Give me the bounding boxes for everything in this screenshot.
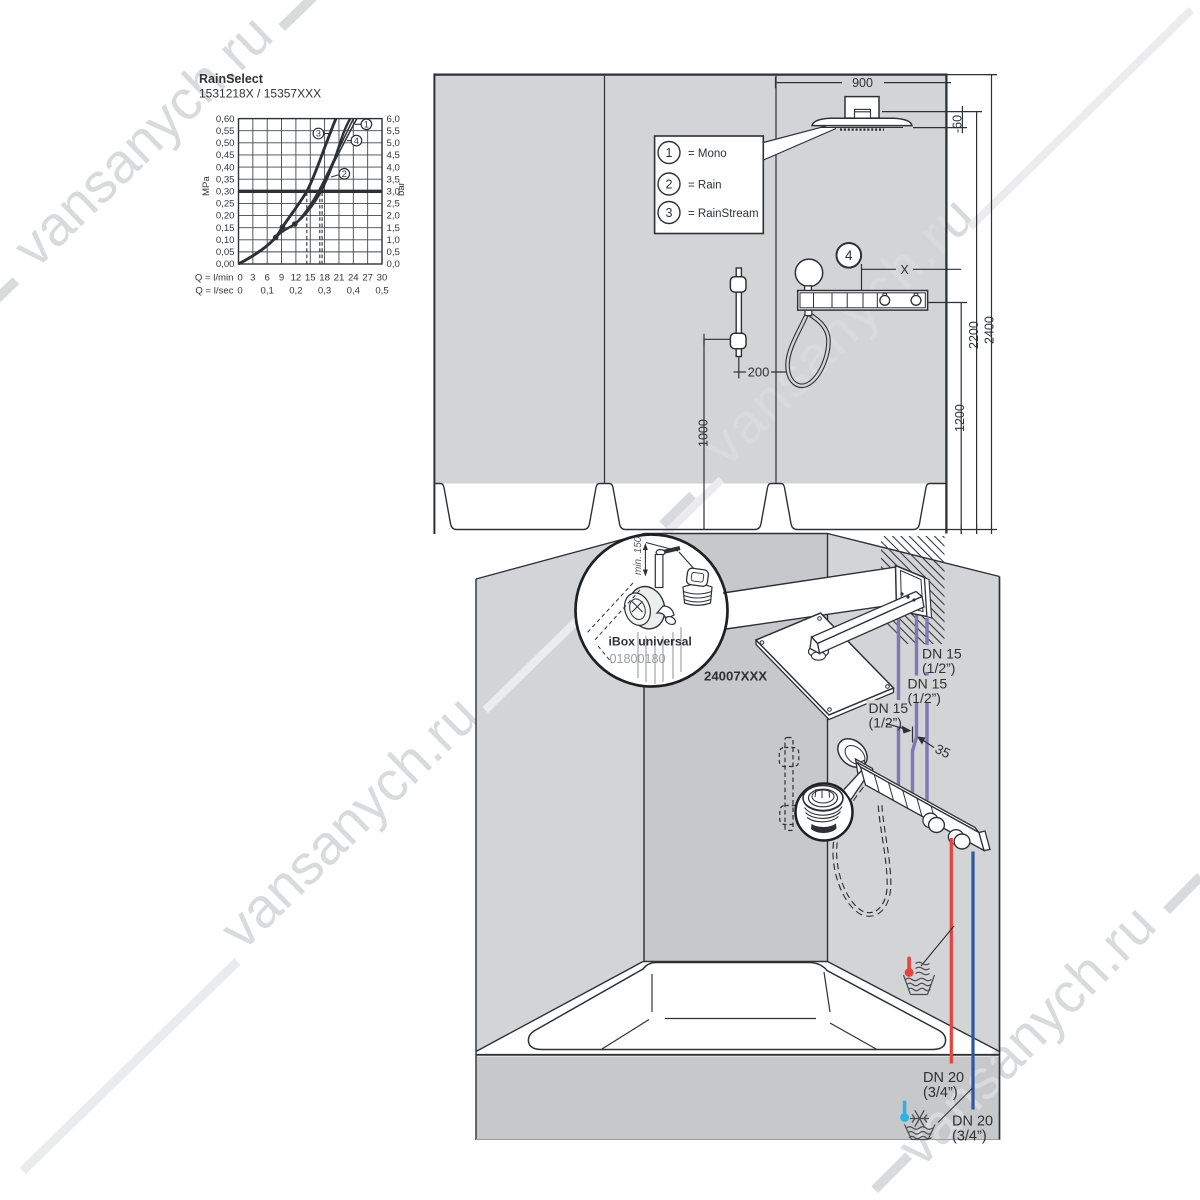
svg-text:0,15: 0,15 [216, 223, 235, 234]
svg-text:0,05: 0,05 [216, 247, 235, 258]
svg-text:0,25: 0,25 [216, 199, 235, 210]
svg-text:-60: -60 [951, 115, 965, 133]
svg-text:1,0: 1,0 [387, 235, 400, 246]
svg-text:5,0: 5,0 [387, 138, 400, 149]
svg-text:1200: 1200 [953, 404, 967, 432]
svg-text:RainSelect: RainSelect [199, 72, 264, 86]
svg-text:0,55: 0,55 [216, 126, 235, 137]
svg-text:0,40: 0,40 [216, 162, 235, 173]
svg-text:3: 3 [316, 129, 321, 139]
svg-text:27: 27 [362, 273, 373, 284]
svg-text:30: 30 [377, 273, 388, 284]
svg-text:DN 20: DN 20 [952, 1114, 993, 1130]
svg-text:0,45: 0,45 [216, 150, 235, 161]
svg-text:0,00: 0,00 [216, 259, 235, 270]
svg-text:9: 9 [279, 273, 284, 284]
svg-text:200: 200 [748, 364, 770, 379]
svg-text:01800180: 01800180 [610, 652, 666, 666]
svg-text:= RainStream: = RainStream [688, 208, 759, 220]
svg-text:(3/4”): (3/4”) [923, 1085, 958, 1101]
svg-text:1000: 1000 [697, 419, 711, 447]
svg-text:0,0: 0,0 [387, 259, 400, 270]
svg-text:0,3: 0,3 [318, 286, 331, 297]
svg-text:(1/2”): (1/2”) [869, 715, 902, 731]
svg-text:3: 3 [250, 273, 255, 284]
svg-text:(1/2”): (1/2”) [908, 690, 941, 706]
svg-text:21: 21 [334, 273, 345, 284]
svg-text:(3/4”): (3/4”) [952, 1129, 987, 1145]
svg-text:2: 2 [342, 169, 347, 179]
svg-text:24007XXX: 24007XXX [704, 669, 767, 684]
svg-text:5,5: 5,5 [387, 126, 400, 137]
svg-text:0,50: 0,50 [216, 138, 235, 149]
svg-text:12: 12 [291, 273, 302, 284]
svg-text:= Rain: = Rain [688, 180, 722, 192]
svg-text:Q = l/sec: Q = l/sec [195, 286, 233, 297]
svg-text:Q = l/min: Q = l/min [195, 273, 234, 284]
svg-text:1,5: 1,5 [387, 223, 400, 234]
svg-text:1: 1 [666, 146, 673, 160]
svg-text:1: 1 [364, 120, 369, 130]
svg-text:0,60: 0,60 [216, 114, 235, 125]
svg-text:24: 24 [348, 273, 359, 284]
svg-text:0,30: 0,30 [216, 187, 235, 198]
svg-text:15: 15 [305, 273, 316, 284]
svg-text:4,0: 4,0 [387, 162, 400, 173]
svg-text:0,35: 0,35 [216, 174, 235, 185]
svg-text:bar: bar [396, 181, 407, 196]
svg-text:MPa: MPa [201, 176, 212, 196]
svg-text:4,5: 4,5 [387, 150, 400, 161]
svg-text:= Mono: = Mono [688, 148, 727, 160]
svg-text:2200: 2200 [967, 321, 981, 349]
svg-text:X: X [900, 263, 909, 277]
svg-text:0,5: 0,5 [387, 247, 400, 258]
svg-text:0,4: 0,4 [347, 286, 361, 297]
svg-text:6,0: 6,0 [387, 114, 400, 125]
svg-text:0,5: 0,5 [375, 286, 388, 297]
svg-text:2,0: 2,0 [387, 211, 400, 222]
svg-text:0,2: 0,2 [289, 286, 302, 297]
svg-text:2: 2 [666, 178, 673, 192]
svg-text:DN 20: DN 20 [923, 1070, 964, 1086]
svg-text:(1/2”): (1/2”) [922, 660, 955, 676]
svg-text:0: 0 [237, 273, 242, 284]
svg-text:0,20: 0,20 [216, 211, 235, 222]
svg-text:18: 18 [319, 273, 330, 284]
svg-text:3: 3 [666, 206, 673, 220]
svg-text:0: 0 [237, 286, 242, 297]
svg-text:4: 4 [845, 248, 853, 263]
svg-text:1531218X / 15357XXX: 1531218X / 15357XXX [199, 87, 321, 101]
svg-text:0,10: 0,10 [216, 235, 235, 246]
svg-text:iBox universal: iBox universal [609, 635, 692, 649]
svg-text:min. 150: min. 150 [633, 536, 644, 575]
svg-text:900: 900 [852, 76, 873, 90]
svg-text:0,1: 0,1 [261, 286, 274, 297]
svg-text:2400: 2400 [983, 316, 997, 344]
svg-text:6: 6 [265, 273, 270, 284]
svg-text:4: 4 [354, 136, 359, 146]
svg-text:2,5: 2,5 [387, 199, 400, 210]
